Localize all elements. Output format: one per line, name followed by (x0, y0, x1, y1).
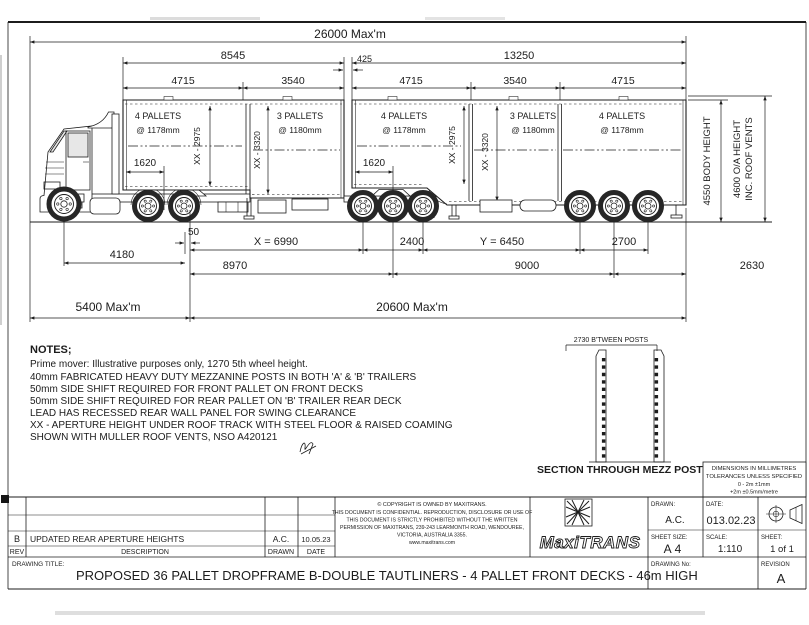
scale-value: 1:110 (718, 544, 743, 555)
note-line: LEAD HAS RECESSED REAR WALL PANEL FOR SW… (30, 408, 356, 419)
roof-vent (509, 97, 518, 101)
tolerance-line: DIMENSIONS IN MILLIMETRES (712, 466, 797, 472)
mezz-section-caption: SECTION THROUGH MEZZ POSTS (537, 464, 710, 476)
roof-vent (388, 97, 397, 101)
dim-a-axle-spread: 2400 (400, 236, 424, 248)
drawn-value: A.C. (665, 515, 684, 526)
engineering-drawing-svg: 26000 Max'm 8545 13250 425 4715 3540 471… (0, 0, 809, 620)
drive-wheel (171, 193, 198, 220)
note-line: Prime mover: Illustrative purposes only,… (30, 359, 308, 370)
b-trailer-wheel (635, 193, 662, 220)
dim-body-height: 4550 BODY HEIGHT (702, 116, 713, 205)
note-line: 50mm SIDE SHIFT REQUIRED FOR REAR PALLET… (30, 396, 402, 407)
rev-entry-rev: B (14, 534, 20, 544)
b-front-aperture: XX - 2975 (447, 126, 457, 164)
roof-fairing (88, 112, 114, 128)
copyright-line: THIS DOCUMENT IS STRICTLY PROHIBITED WIT… (346, 518, 517, 524)
toolbox (480, 200, 512, 212)
dim-front-max: 5400 Max'm (76, 300, 141, 314)
notes: NOTES; Prime mover: Illustrative purpose… (30, 344, 453, 454)
note-line: SHOWN WITH MULLER ROOF VENTS, NSO A42012… (30, 432, 278, 443)
note-line: 50mm SIDE SHIFT REQUIRED FOR FRONT PALLE… (30, 384, 363, 395)
toolbox (292, 199, 328, 210)
tolerance-box: DIMENSIONS IN MILLIMETRES TOLERANCES UNL… (703, 462, 806, 497)
dim-a-trailer-length: 8545 (221, 50, 245, 62)
drive-wheel (135, 193, 162, 220)
b-mid-deck-pallets: 3 PALLETS (510, 111, 556, 121)
notes-heading: NOTES; (30, 344, 72, 356)
scale-label: SCALE: (706, 535, 728, 541)
b-trailer-wheel (601, 193, 628, 220)
dim-deck-5: 4715 (611, 75, 635, 87)
dim-oa-height-1: 4600 O/A HEIGHT (732, 120, 743, 198)
a-rear-aperture: XX - 3320 (252, 131, 262, 169)
dim-deck-1: 4715 (171, 75, 195, 87)
a-front-deck-pitch: @ 1178mm (136, 125, 179, 135)
b-front-deck-pallets: 4 PALLETS (381, 111, 427, 121)
toolbox (258, 200, 286, 213)
date-label: DATE: (706, 502, 724, 508)
drawing-title-label: DRAWING TITLE: (12, 561, 65, 568)
a-kingpin-offset: 1620 (134, 158, 157, 169)
sheet-value: 1 of 1 (770, 544, 794, 555)
dim-y: Y = 6450 (480, 236, 524, 248)
a-front-deck-pallets: 4 PALLETS (135, 111, 181, 121)
a-trailer-wheel (350, 193, 377, 220)
dim-deck-4: 3540 (503, 75, 527, 87)
landing-gear (244, 216, 254, 219)
roof-vent (164, 97, 173, 101)
dim-b-trailer-length: 13250 (504, 50, 535, 62)
dim-combo-max: 20600 Max'm (376, 300, 448, 314)
dim-deck-2: 3540 (281, 75, 305, 87)
dim-x: X = 6990 (254, 236, 298, 248)
sheet-size-value: A4 (664, 542, 685, 556)
rev-header-drawn: DRAWN (268, 549, 294, 556)
a-trailer-wheel (410, 193, 437, 220)
steer-wheel (49, 189, 79, 219)
note-line: 40mm FABRICATED HEAVY DUTY MEZZANINE POS… (30, 372, 417, 383)
b-rear-deck-pitch: @ 1178mm (600, 125, 643, 135)
drawing-sheet: 26000 Max'm 8545 13250 425 4715 3540 471… (0, 0, 809, 620)
a-rear-deck-pallets: 3 PALLETS (277, 111, 323, 121)
door-window (68, 133, 88, 157)
mezz-post-section: 2730 B'TWEEN POSTS SECTION THROUGH MEZZ … (537, 337, 710, 476)
dim-wheelbase: 4180 (110, 249, 134, 261)
dim-rear-overhang: 2630 (740, 260, 764, 272)
height-dimensions: 4550 BODY HEIGHT 4600 O/A HEIGHT INC. RO… (688, 96, 772, 222)
b-mid-aperture: XX - 3320 (480, 133, 490, 171)
a-front-aperture: XX - 2975 (192, 127, 202, 165)
a-trailer-wheel (380, 193, 407, 220)
b-rear-deck-pallets: 4 PALLETS (599, 111, 645, 121)
date-value: 013.02.23 (707, 515, 756, 527)
b-trailer-wheel (567, 193, 594, 220)
roof-vent (283, 97, 292, 101)
dim-oa-height-2: INC. ROOF VENTS (744, 117, 755, 200)
dim-b-span: 9000 (515, 260, 539, 272)
tank (520, 200, 556, 211)
signature-mark (300, 443, 316, 454)
rev-entry-drawn: A.C. (273, 534, 290, 544)
dim-trailer-gap: 425 (357, 54, 372, 64)
copyright-line: © COPYRIGHT IS OWNED BY MAXITRANS. (377, 501, 486, 508)
underrun-bar (671, 215, 682, 218)
drawing-title: PROPOSED 36 PALLET DROPFRAME B-DOUBLE TA… (76, 568, 698, 583)
fuel-tank (90, 198, 120, 214)
dim-fifth-wheel-offset: 50 (188, 227, 200, 238)
drawn-label: DRAWN: (651, 502, 675, 508)
rev-marker-square (1, 495, 9, 503)
rev-header-description: DESCRIPTION (121, 549, 169, 556)
b-kingpin-offset: 1620 (363, 158, 386, 169)
third-angle-projection-symbol (766, 505, 802, 524)
dim-deck-3: 4715 (399, 75, 423, 87)
tolerance-line: 0 - 2m ±1mm (738, 482, 771, 488)
dim-overall-length: 26000 Max'm (314, 27, 386, 41)
tolerance-line: +2m ±0.5mm/metre (730, 490, 778, 496)
b-front-deck-pitch: @ 1178mm (382, 125, 425, 135)
landing-gear (449, 216, 459, 219)
sheet-size-label: SHEET SIZE: (651, 535, 688, 541)
dim-b-axle-spread: 2700 (612, 236, 636, 248)
copyright-line: PERMISSION OF MAXITRANS, 239-243 LEARMON… (340, 525, 524, 531)
tolerance-line: TOLERANCES UNLESS SPECIFIED (706, 474, 802, 480)
rev-entry-date: 10.05.23 (301, 535, 330, 544)
dim-lead-span: 8970 (223, 260, 247, 272)
note-line: XX - APERTURE HEIGHT UNDER ROOF TRACK WI… (30, 420, 453, 431)
revision-label: REVISION (761, 562, 790, 568)
maxitrans-logo-icon (565, 499, 592, 526)
copyright-line: THIS DOCUMENT IS CONFIDENTIAL. REPRODUCT… (332, 510, 533, 516)
b-mid-deck-pitch: @ 1180mm (511, 125, 554, 135)
mezz-post-dim: 2730 B'TWEEN POSTS (574, 337, 649, 344)
rev-header-date: DATE (307, 549, 325, 556)
revision-value: A (777, 571, 786, 586)
rev-header-rev: REV (10, 549, 25, 556)
a-rear-deck-pitch: @ 1180mm (278, 125, 321, 135)
copyright-line: VICTORIA, AUSTRALIA 3355. (397, 533, 467, 539)
sheet-label: SHEET: (761, 535, 782, 541)
copyright-line: www.maxitrans.com (409, 540, 455, 546)
bottom-dimensions: 50 X = 6990 2400 Y = 6450 2700 4180 8970… (30, 208, 764, 322)
exhaust-stack (112, 114, 119, 194)
roof-vent (619, 97, 628, 101)
rev-entry-description: UPDATED REAR APERTURE HEIGHTS (30, 534, 184, 544)
title-block: B UPDATED REAR APERTURE HEIGHTS A.C. 10.… (1, 495, 806, 589)
maxitrans-logo-wordmark: MaxiTRANS (540, 533, 641, 552)
